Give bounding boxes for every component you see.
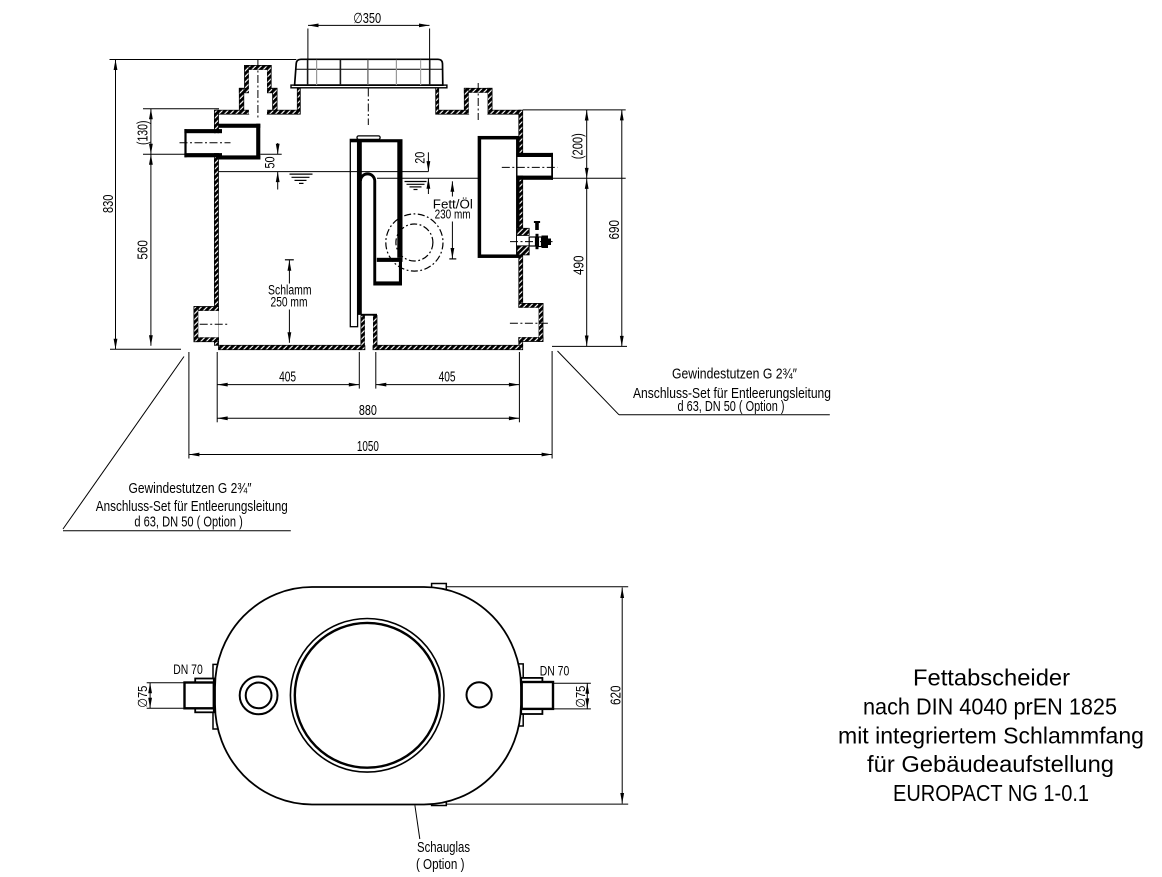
svg-text:(130): (130) <box>136 121 152 146</box>
svg-text:d 63, DN 50 ( Option ): d 63, DN 50 ( Option ) <box>134 513 243 530</box>
svg-text:DN 70: DN 70 <box>540 663 570 678</box>
svg-text:mit integriertem Schlammfang: mit integriertem Schlammfang <box>838 723 1144 749</box>
svg-text:Gewindestutzen G 2¾″: Gewindestutzen G 2¾″ <box>672 365 798 382</box>
svg-text:∅75: ∅75 <box>135 686 150 708</box>
svg-text:830: 830 <box>101 195 117 214</box>
svg-text:880: 880 <box>359 403 377 419</box>
svg-text:für Gebäudeaufstellung: für Gebäudeaufstellung <box>867 751 1114 777</box>
svg-text:nach DIN 4040 prEN 1825: nach DIN 4040 prEN 1825 <box>863 694 1117 720</box>
svg-text:Anschluss-Set für Entleerungsl: Anschluss-Set für Entleerungsleitung <box>96 498 288 515</box>
svg-text:20: 20 <box>411 152 427 164</box>
svg-text:405: 405 <box>439 370 456 386</box>
svg-text:d 63, DN 50 ( Option ): d 63, DN 50 ( Option ) <box>678 398 785 415</box>
svg-text:405: 405 <box>279 370 296 386</box>
svg-text:DN 70: DN 70 <box>173 662 203 677</box>
svg-text:690: 690 <box>607 220 623 240</box>
svg-text:230 mm: 230 mm <box>435 206 471 221</box>
svg-text:Schauglas: Schauglas <box>417 840 470 856</box>
svg-text:∅75: ∅75 <box>573 686 588 708</box>
svg-text:250 mm: 250 mm <box>271 294 308 309</box>
svg-text:Gewindestutzen G 2¾″: Gewindestutzen G 2¾″ <box>129 480 253 497</box>
svg-text:50: 50 <box>261 156 277 168</box>
svg-text:1050: 1050 <box>357 439 379 455</box>
svg-text:620: 620 <box>609 685 625 705</box>
svg-text:( Option ): ( Option ) <box>416 857 465 873</box>
svg-text:560: 560 <box>136 240 152 260</box>
svg-text:EUROPACT NG 1-0.1: EUROPACT NG 1-0.1 <box>893 780 1089 806</box>
svg-text:Fettabscheider: Fettabscheider <box>913 665 1070 691</box>
svg-text:490: 490 <box>572 256 588 276</box>
svg-text:(200): (200) <box>571 133 587 159</box>
svg-text:∅350: ∅350 <box>353 11 381 27</box>
